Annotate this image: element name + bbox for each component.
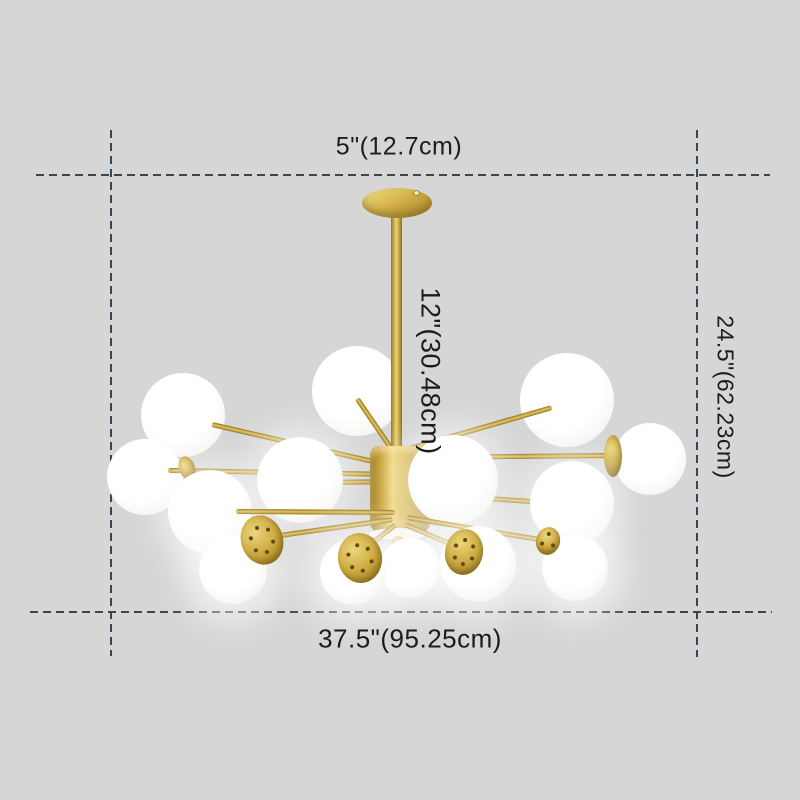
rod-length-label: 12"(30.48cm): [415, 287, 446, 454]
glass-globe: [520, 353, 614, 447]
ceiling-canopy: [362, 188, 432, 218]
socket-hole: [347, 552, 352, 557]
arm-cap: [604, 435, 622, 477]
chandelier-arm: [236, 509, 395, 515]
socket-hole: [271, 539, 276, 544]
socket-hole: [350, 565, 355, 570]
dimension-line-right: [696, 130, 698, 657]
socket-hole: [550, 543, 555, 548]
socket-hole: [254, 526, 259, 531]
dimension-line-bottom: [30, 611, 772, 613]
socket-hole: [366, 547, 371, 552]
socket-hole: [265, 549, 270, 554]
socket-hole: [540, 541, 545, 546]
total-width-label: 37.5"(95.25cm): [318, 624, 502, 655]
socket-hole: [463, 538, 468, 543]
socket-hole: [470, 556, 475, 561]
socket-hole: [355, 543, 360, 548]
dimension-line-left: [110, 130, 112, 656]
glass-globe: [614, 423, 686, 495]
product-dimension-diagram: 5"(12.7cm) 12"(30.48cm) 24.5"(62.23cm) 3…: [0, 0, 800, 800]
socket-hole: [254, 548, 259, 553]
canopy-width-label: 5"(12.7cm): [336, 133, 462, 162]
canopy-screw: [414, 191, 419, 195]
socket-hole: [471, 544, 476, 549]
glass-globe: [380, 538, 440, 598]
socket-hole: [461, 562, 466, 567]
hanging-rod: [391, 214, 402, 450]
socket-hole: [248, 536, 253, 541]
socket-hole: [361, 568, 366, 573]
total-height-label: 24.5"(62.23cm): [712, 315, 739, 478]
socket-hole: [454, 544, 459, 549]
socket-hole: [369, 559, 374, 564]
socket-hole: [547, 531, 552, 536]
socket-hole: [265, 527, 270, 532]
glass-globe: [312, 346, 402, 436]
dimension-line-top: [36, 174, 770, 176]
socket-hole: [453, 555, 458, 560]
